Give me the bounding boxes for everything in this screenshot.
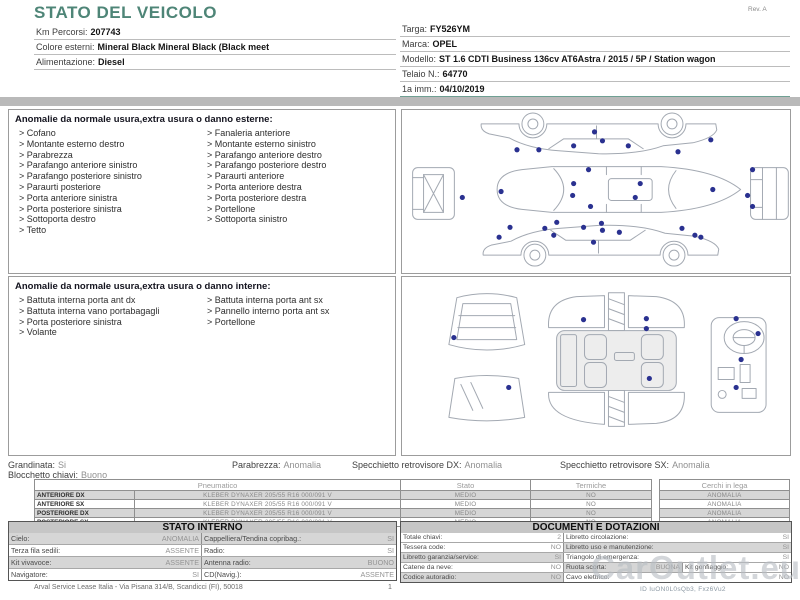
seats-view [548, 293, 684, 427]
damage-dot [554, 220, 559, 225]
page-title: STATO DEL VEICOLO [34, 3, 217, 23]
interior-anomalies-title: Anomalie da normale usura,extra usura o … [9, 277, 395, 294]
summary-specchietto-sx: Specchietto retrovisore SX:Anomalia [560, 460, 710, 470]
field-value: NO [551, 544, 561, 551]
table-row: ANTERIORE DXKLEBER DYNAXER 205/55 R16 00… [35, 491, 652, 500]
field-radio: Radio:SI [202, 545, 396, 556]
field-label: Totale chiavi: [403, 534, 442, 541]
table-row: Totale chiavi:2 Libretto circolazione:SI [401, 533, 791, 543]
exterior-anomalies-col1: CofanoMontante esterno destroParabrezzaP… [19, 128, 207, 236]
field-label: Libretto circolazione: [566, 534, 628, 541]
stato-interno-table: Cielo:ANOMALIA Cappelliera/Tendina copri… [8, 533, 397, 581]
damage-dot [600, 228, 605, 233]
anomaly-item: Sottoporta sinistro [207, 214, 395, 225]
table-row: POSTERIORE DXKLEBER DYNAXER 205/55 R16 0… [35, 509, 652, 518]
summary-value: Anomalia [672, 460, 710, 470]
anomaly-item: Battuta interna porta ant sx [207, 295, 395, 306]
cerchi-table: Cerchi in lega ANOMALIA ANOMALIA ANOMALI… [659, 479, 790, 527]
anomaly-item: Parafango anteriore sinistro [19, 160, 207, 171]
damage-dot [542, 226, 547, 231]
col-header-cerchi: Cerchi in lega [660, 480, 790, 491]
damage-dot [451, 335, 456, 340]
interior-anomalies-col2: Battuta interna porta ant sxPannello int… [207, 295, 395, 338]
tire-position: ANTERIORE DX [35, 491, 135, 500]
anomaly-item: Parafango posteriore destro [207, 160, 395, 171]
summary-parabrezza: Parabrezza:Anomalia [232, 460, 321, 470]
field-label: Cielo: [11, 534, 29, 543]
damage-dot [755, 331, 760, 336]
cerchi-header-row: Cerchi in lega [660, 480, 790, 491]
anomaly-item: Porta posteriore sinistra [19, 204, 207, 215]
field-value: 04/10/2019 [440, 84, 485, 94]
damage-dot [675, 149, 680, 154]
col-header-pneumatico: Pneumatico [35, 480, 401, 491]
field-telaio: Telaio N.:64770 [400, 67, 790, 82]
field-value: 64770 [443, 69, 468, 79]
damage-dot [592, 129, 597, 134]
tire-termiche: NO [531, 500, 652, 509]
anomaly-item: Tetto [19, 225, 207, 236]
field-alimentazione: Alimentazione:Diesel [34, 55, 396, 70]
car-exterior-diagram [402, 110, 790, 273]
field-value: ST 1.6 CDTI Business 136cv AT6Astra / 20… [439, 54, 715, 64]
tire-position: POSTERIORE DX [35, 509, 135, 518]
field-label: Libretto garanzia/service: [403, 554, 479, 561]
field-value: ASSENTE [360, 570, 394, 579]
field-value: ASSENTE [165, 558, 199, 567]
damage-dot [536, 147, 541, 152]
field-label: CD(Navig.): [204, 570, 242, 579]
field-value: Diesel [98, 57, 125, 67]
table-row: ANOMALIA [660, 509, 790, 518]
cerchi-value: ANOMALIA [660, 491, 790, 500]
field-label: Alimentazione: [36, 57, 95, 67]
anomaly-item: Portellone [207, 317, 395, 328]
watermark-id: ID IuON0L0sQb3, Fxz6Vu2 [640, 586, 726, 593]
interior-anomalies-panel: Anomalie da normale usura,extra usura o … [8, 276, 396, 456]
field-value: OPEL [433, 39, 458, 49]
tire-termiche: NO [531, 491, 652, 500]
damage-dot [734, 316, 739, 321]
field-codice-autoradio: Codice autoradio:NO [401, 573, 564, 582]
field-label: Antenna radio: [204, 558, 251, 567]
anomaly-item: Porta posteriore destra [207, 193, 395, 204]
summary-value: Si [58, 460, 66, 470]
damage-dot [692, 233, 697, 238]
damage-dot [647, 376, 652, 381]
vehicle-status-report: STATO DEL VEICOLO Rev. A Km Percorsi:207… [0, 0, 800, 600]
field-label: Modello: [402, 54, 436, 64]
summary-value: Anomalia [284, 460, 322, 470]
damage-dot [571, 143, 576, 148]
damage-dot [644, 316, 649, 321]
field-value: SI [192, 570, 199, 579]
summary-value: Anomalia [465, 460, 503, 470]
caroutlet-watermark: CarOutlet.eu [591, 549, 800, 587]
damage-dot [710, 187, 715, 192]
field-antenna: Antenna radio:BUONO [202, 557, 396, 568]
damage-dot [498, 189, 503, 194]
field-catene-neve: Catene da neve:NO [401, 563, 564, 572]
field-value: SI [387, 534, 394, 543]
revision-label: Rev. A [748, 6, 767, 13]
table-row: ANOMALIA [660, 500, 790, 509]
anomaly-item: Portellone [207, 204, 395, 215]
field-value: SI [783, 534, 789, 541]
anomaly-item: Porta anteriore destra [207, 182, 395, 193]
table-row: Kit vivavoce:ASSENTE Antenna radio:BUONO [9, 557, 396, 569]
field-modello: Modello:ST 1.6 CDTI Business 136cv AT6As… [400, 52, 790, 67]
field-cielo: Cielo:ANOMALIA [9, 533, 202, 544]
table-row: Navigatore:SI CD(Navig.):ASSENTE [9, 569, 396, 580]
field-navigatore: Navigatore:SI [9, 569, 202, 580]
table-row: Cielo:ANOMALIA Cappelliera/Tendina copri… [9, 533, 396, 545]
anomaly-item: Battuta interna porta ant dx [19, 295, 207, 306]
damage-dot [679, 226, 684, 231]
tire-stato: MEDIO [401, 509, 531, 518]
damage-dot [750, 204, 755, 209]
tires-header-row: Pneumatico Stato Termiche [35, 480, 652, 491]
damage-dot [638, 181, 643, 186]
damage-dot [617, 230, 622, 235]
damage-dot [581, 317, 586, 322]
exterior-damage-dots [460, 129, 755, 244]
field-value: NO [551, 574, 561, 581]
exterior-anomalies-columns: CofanoMontante esterno destroParabrezzaP… [9, 127, 395, 236]
interior-anomalies-col1: Battuta interna porta ant dxBattuta inte… [19, 295, 207, 338]
field-colore: Colore esterni:Mineral Black Mineral Bla… [34, 40, 396, 55]
anomaly-item: Montante esterno sinistro [207, 139, 395, 150]
tire-spec: KLEBER DYNAXER 205/55 R16 000/091 V [135, 491, 401, 500]
field-label: Tessera code: [403, 544, 445, 551]
damage-dot [497, 235, 502, 240]
cerchi-value: ANOMALIA [660, 509, 790, 518]
section-divider-band [0, 97, 800, 106]
anomaly-item: Battuta interna vano portabagagli [19, 306, 207, 317]
anomaly-item: Montante esterno destro [19, 139, 207, 150]
tire-spec: KLEBER DYNAXER 205/55 R16 000/091 V [135, 500, 401, 509]
field-label: Navigatore: [11, 570, 48, 579]
field-totale-chiavi: Totale chiavi:2 [401, 533, 564, 542]
interior-anomalies-columns: Battuta interna porta ant dxBattuta inte… [9, 294, 395, 338]
field-value: BUONO [368, 558, 394, 567]
field-value: 207743 [91, 27, 121, 37]
field-label: Telaio N.: [402, 69, 440, 79]
damage-dot [588, 204, 593, 209]
damage-dot [599, 221, 604, 226]
field-label: Km Percorsi: [36, 27, 88, 37]
anomaly-item: Paraurti anteriore [207, 171, 395, 182]
col-header-termiche: Termiche [531, 480, 652, 491]
anomaly-item: Cofano [19, 128, 207, 139]
tire-stato: MEDIO [401, 491, 531, 500]
anomaly-item: Porta anteriore sinistra [19, 193, 207, 204]
damage-dot [551, 233, 556, 238]
field-kit-vivavoce: Kit vivavoce:ASSENTE [9, 557, 202, 568]
field-label: Colore esterni: [36, 42, 95, 52]
anomaly-item: Parafango posteriore sinistro [19, 171, 207, 182]
damage-dot [626, 143, 631, 148]
exterior-anomalies-col2: Fanaleria anterioreMontante esterno sini… [207, 128, 395, 236]
tires-table: Pneumatico Stato Termiche ANTERIORE DXKL… [34, 479, 652, 527]
exterior-diagram-panel [401, 109, 791, 274]
damage-dot [581, 225, 586, 230]
tire-position: ANTERIORE SX [35, 500, 135, 509]
table-row: ANOMALIA [660, 491, 790, 500]
field-value: ASSENTE [165, 546, 199, 555]
damage-dot [570, 193, 575, 198]
tire-termiche: NO [531, 509, 652, 518]
damage-dot [745, 193, 750, 198]
field-value: SI [555, 554, 561, 561]
interior-diagram-panel [401, 276, 791, 456]
rear-window-view [449, 375, 525, 420]
field-prima-imm: 1a imm.:04/10/2019 [400, 82, 790, 97]
field-label: Catene da neve: [403, 564, 453, 571]
damage-dot [506, 385, 511, 390]
field-label: 1a imm.: [402, 84, 437, 94]
damage-dot [600, 138, 605, 143]
field-value: Mineral Black Mineral Black (Black meet [98, 42, 270, 52]
anomaly-item: Sottoporta destro [19, 214, 207, 225]
col-header-stato: Stato [401, 480, 531, 491]
rear-view [751, 168, 789, 220]
field-label: Marca: [402, 39, 430, 49]
footer-company: Arval Service Lease Italia - Via Pisana … [34, 584, 243, 591]
exterior-anomalies-panel: Anomalie da normale usura,extra usura o … [8, 109, 396, 274]
summary-specchietto-dx: Specchietto retrovisore DX:Anomalia [352, 460, 502, 470]
anomaly-item: Pannello interno porta ant sx [207, 306, 395, 317]
vehicle-fields-right: Targa:FY526YM Marca:OPEL Modello:ST 1.6 … [400, 22, 790, 97]
damage-dot [507, 225, 512, 230]
damage-dot [734, 385, 739, 390]
field-value: FY526YM [430, 24, 470, 34]
anomaly-item: Volante [19, 327, 207, 338]
field-value: NO [551, 564, 561, 571]
trunk-view [449, 294, 525, 350]
damage-dot [739, 357, 744, 362]
anomaly-item: Parabrezza [19, 150, 207, 161]
field-terza-fila: Terza fila sedili:ASSENTE [9, 545, 202, 556]
anomaly-item: Parafango anteriore destro [207, 150, 395, 161]
damage-dot [591, 240, 596, 245]
tire-stato: MEDIO [401, 500, 531, 509]
field-tessera-code: Tessera code:NO [401, 543, 564, 552]
damage-dot [633, 195, 638, 200]
field-label: Radio: [204, 546, 225, 555]
summary-grandinata: Grandinata:Si [8, 460, 66, 470]
cerchi-value: ANOMALIA [660, 500, 790, 509]
tire-spec: KLEBER DYNAXER 205/55 R16 000/091 V [135, 509, 401, 518]
summary-label: Grandinata: [8, 460, 55, 470]
car-interior-diagram [402, 277, 790, 455]
table-row: Terza fila sedili:ASSENTE Radio:SI [9, 545, 396, 557]
field-libretto-garanzia: Libretto garanzia/service:SI [401, 553, 564, 562]
footer-page-number: 1 [388, 584, 392, 591]
field-targa: Targa:FY526YM [400, 22, 790, 37]
field-label: Cappelliera/Tendina copribag.: [204, 534, 301, 543]
vehicle-fields-left: Km Percorsi:207743 Colore esterni:Minera… [34, 25, 396, 70]
table-row: ANTERIORE SXKLEBER DYNAXER 205/55 R16 00… [35, 500, 652, 509]
anomaly-item: Fanaleria anteriore [207, 128, 395, 139]
field-cd-navig: CD(Navig.):ASSENTE [202, 569, 396, 580]
exterior-anomalies-title: Anomalie da normale usura,extra usura o … [9, 110, 395, 127]
field-value: ANOMALIA [162, 534, 199, 543]
field-value: 2 [557, 534, 561, 541]
field-cappelliera: Cappelliera/Tendina copribag.:SI [202, 533, 396, 544]
damage-dot [514, 147, 519, 152]
damage-dot [460, 195, 465, 200]
anomaly-item: Porta posteriore sinistra [19, 317, 207, 328]
front-view [413, 168, 455, 220]
field-marca: Marca:OPEL [400, 37, 790, 52]
damage-dot [586, 167, 591, 172]
damage-dot [698, 235, 703, 240]
field-label: Kit vivavoce: [11, 558, 51, 567]
field-label: Targa: [402, 24, 427, 34]
plan-view [497, 167, 741, 213]
field-km: Km Percorsi:207743 [34, 25, 396, 40]
summary-label: Specchietto retrovisore DX: [352, 460, 462, 470]
damage-dot [750, 167, 755, 172]
summary-label: Parabrezza: [232, 460, 281, 470]
anomaly-item: Paraurti posteriore [19, 182, 207, 193]
field-libretto-circ: Libretto circolazione:SI [564, 533, 791, 542]
summary-label: Specchietto retrovisore SX: [560, 460, 669, 470]
damage-dot [571, 181, 576, 186]
field-label: Terza fila sedili: [11, 546, 60, 555]
damage-dot [644, 326, 649, 331]
field-label: Codice autoradio: [403, 574, 456, 581]
damage-dot [708, 137, 713, 142]
field-value: SI [387, 546, 394, 555]
